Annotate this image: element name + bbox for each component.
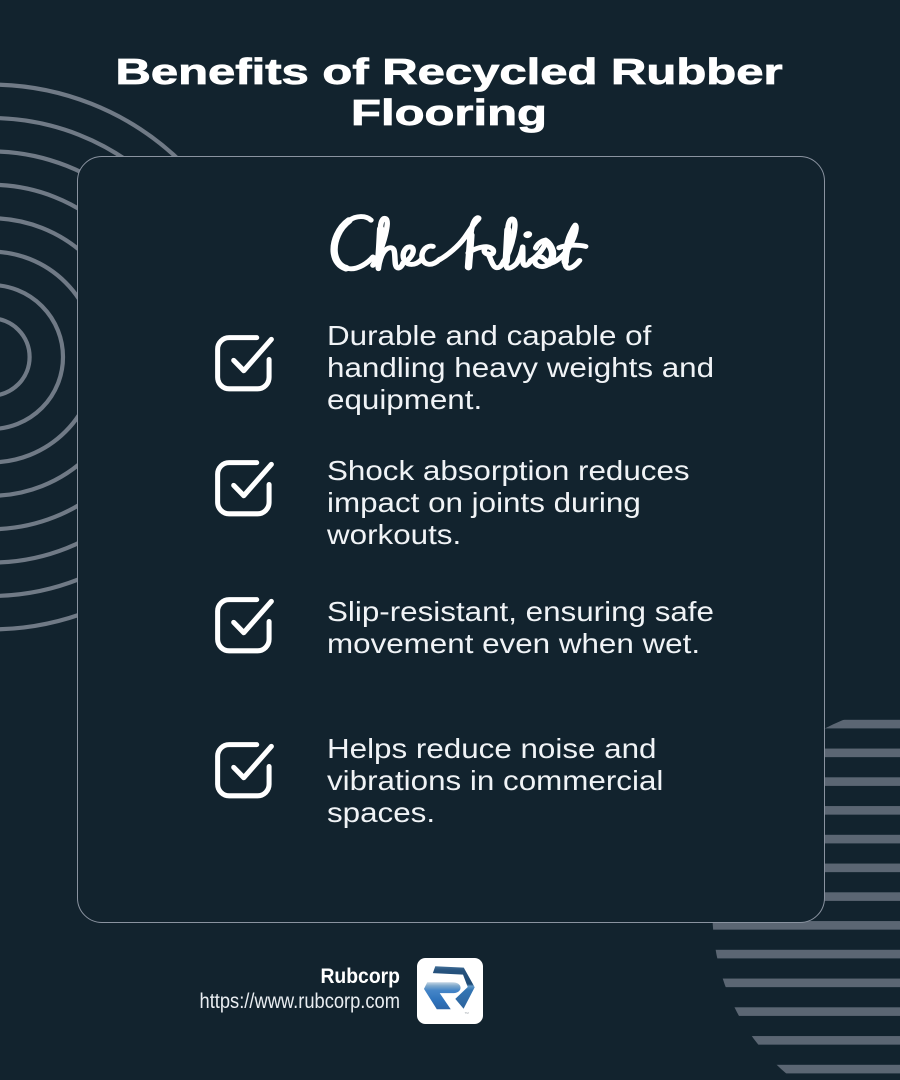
svg-text:TM: TM xyxy=(465,1011,470,1015)
